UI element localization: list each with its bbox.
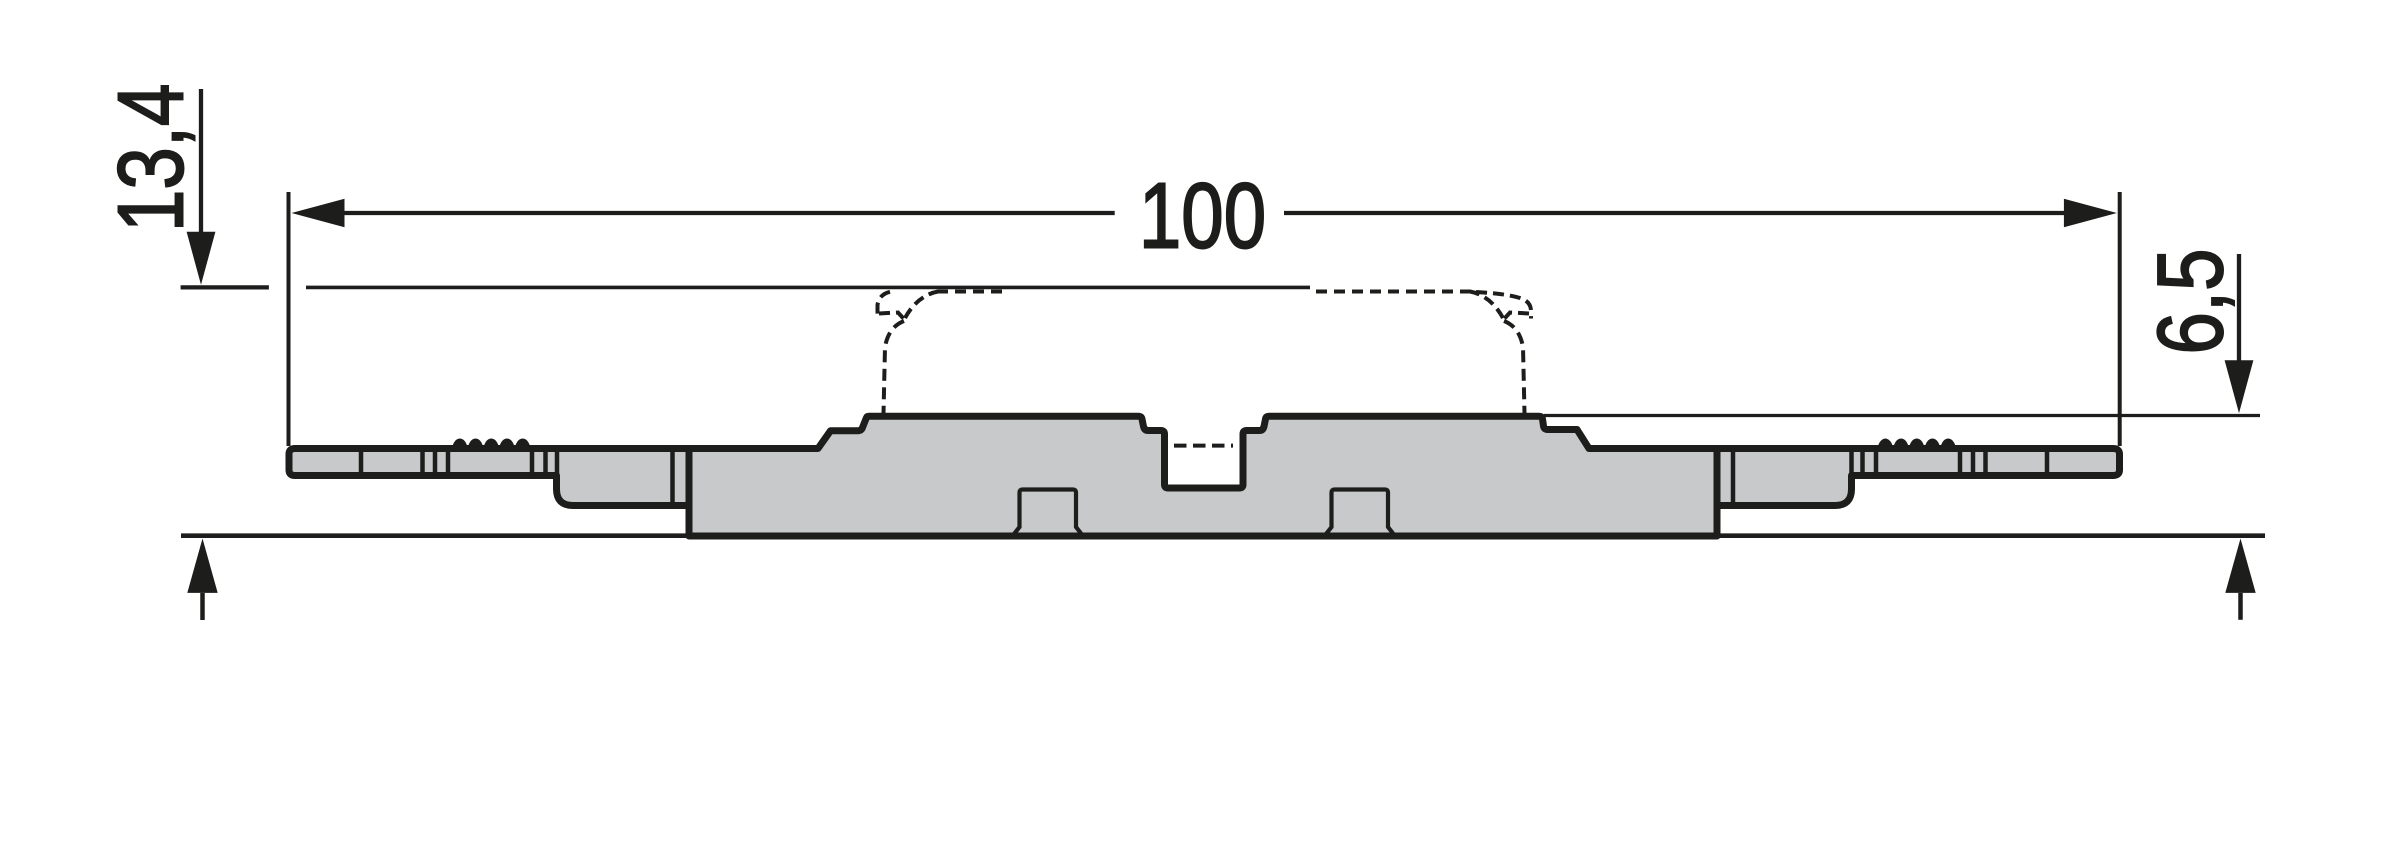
svg-text:6,5: 6,5: [2139, 248, 2243, 354]
svg-text:13,4: 13,4: [99, 84, 203, 232]
svg-text:100: 100: [1139, 164, 1266, 268]
